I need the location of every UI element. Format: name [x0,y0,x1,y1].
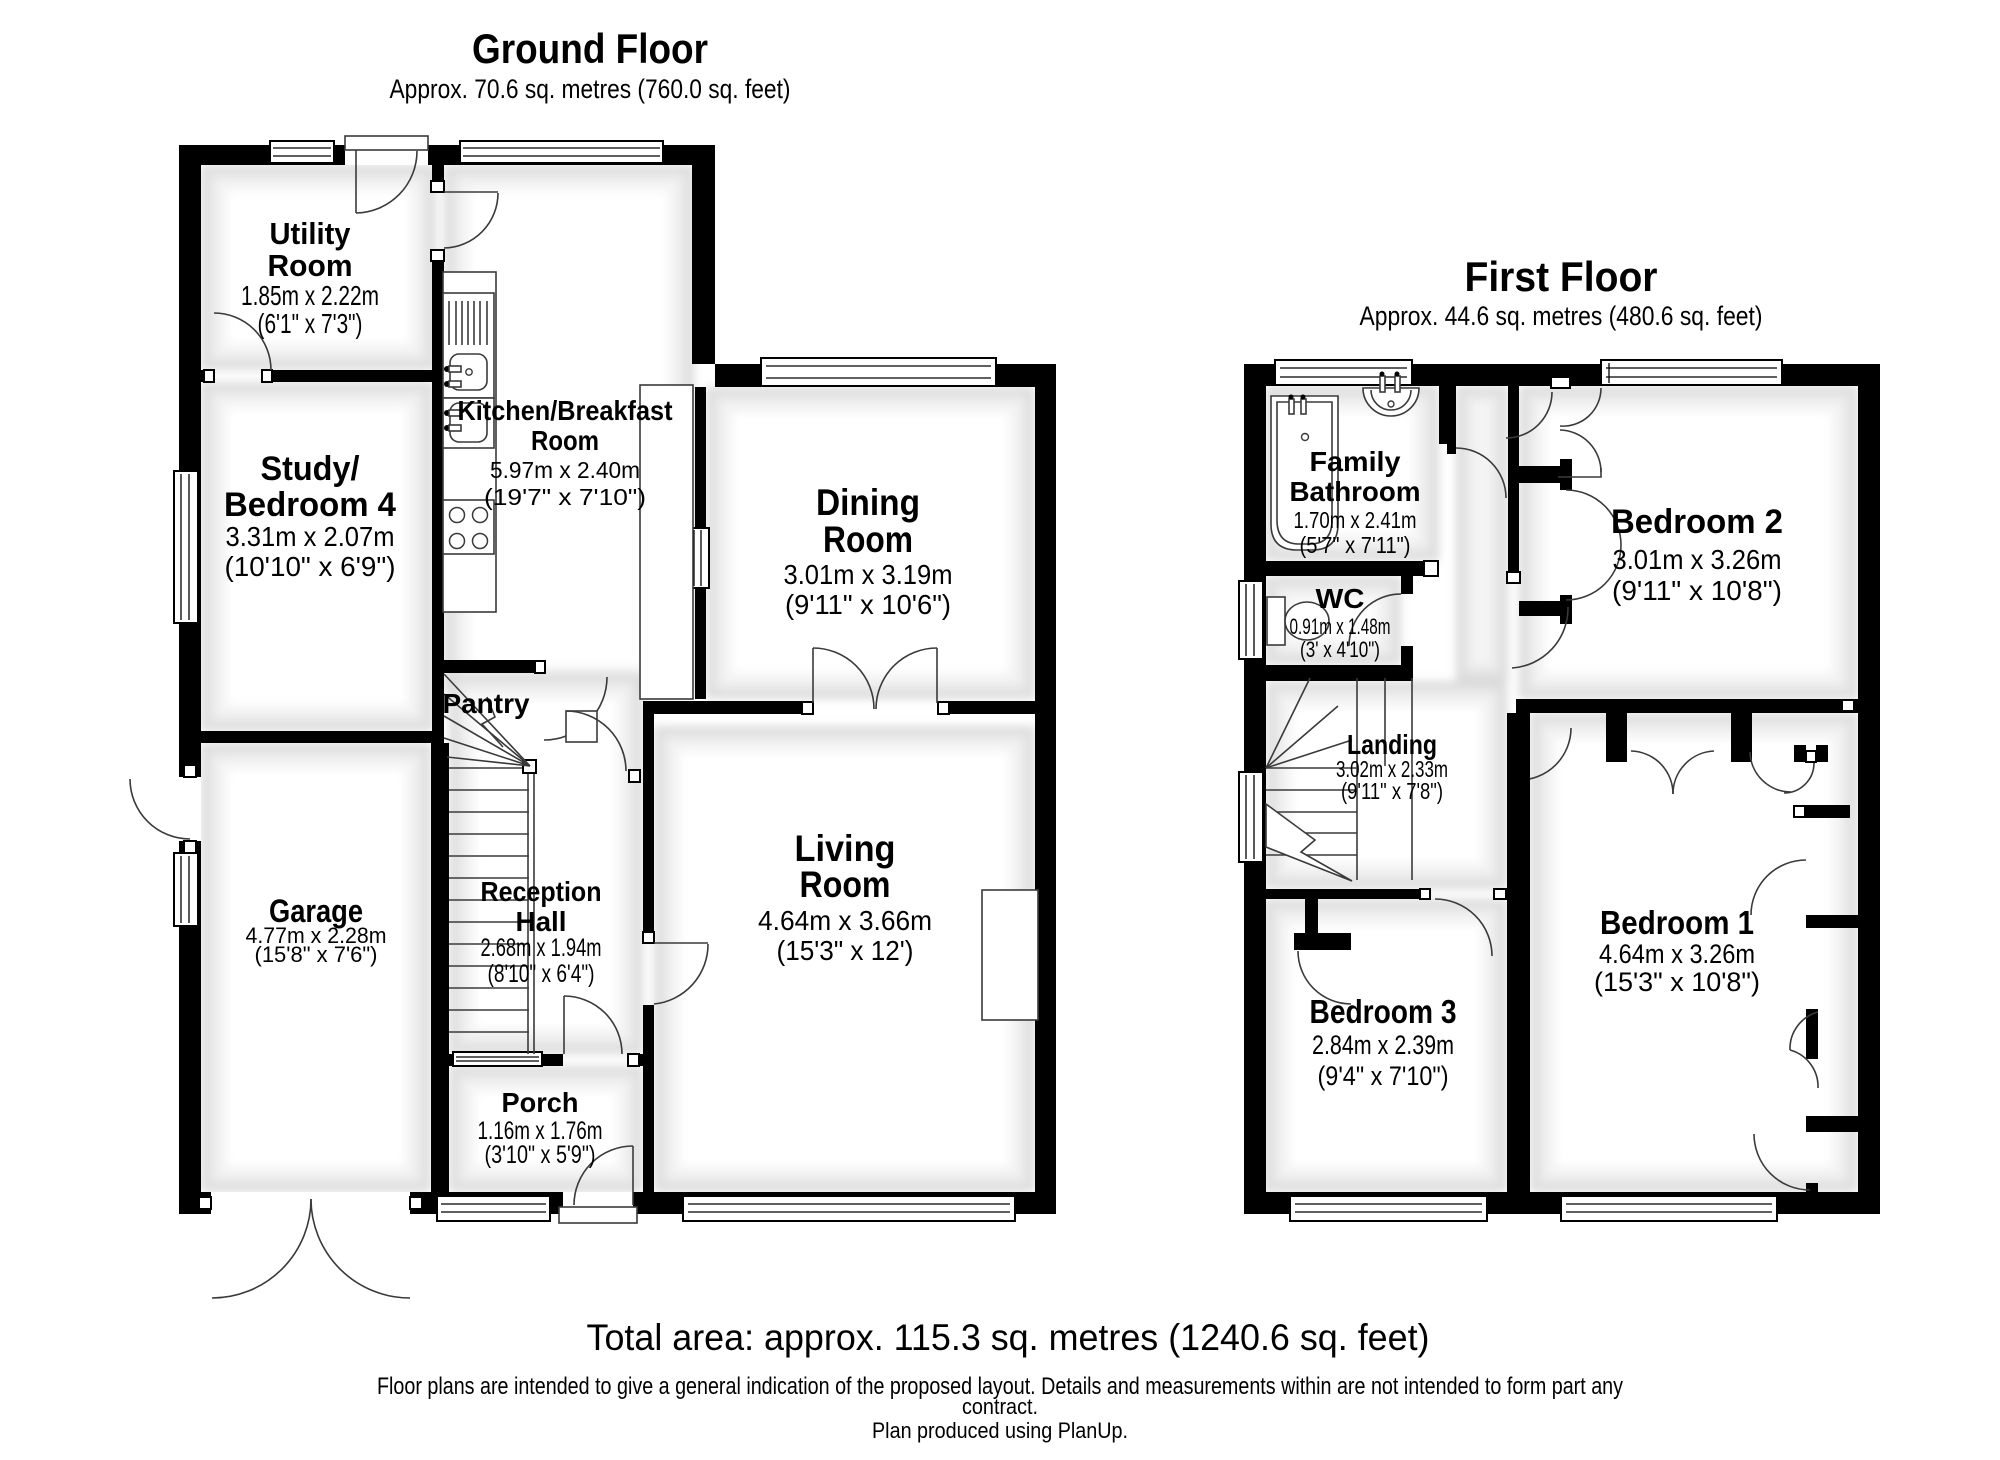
svg-text:1.85m x 2.22m: 1.85m x 2.22m [241,280,379,311]
svg-text:Approx. 44.6 sq. metres (480.6: Approx. 44.6 sq. metres (480.6 sq. feet) [1360,301,1763,331]
svg-text:Reception: Reception [481,876,602,907]
svg-text:4.64m x 3.26m: 4.64m x 3.26m [1599,939,1755,969]
svg-text:(9'11" x 10'8"): (9'11" x 10'8") [1612,575,1782,606]
svg-text:Bedroom 2: Bedroom 2 [1611,503,1783,541]
svg-text:(9'11" x 7'8"): (9'11" x 7'8") [1341,778,1443,804]
svg-text:Utility: Utility [270,216,352,251]
svg-text:WC: WC [1316,583,1365,614]
svg-text:(15'3" x 10'8"): (15'3" x 10'8") [1594,967,1760,997]
svg-text:Plan produced using PlanUp.: Plan produced using PlanUp. [872,1418,1128,1443]
svg-text:Bedroom 3: Bedroom 3 [1310,993,1457,1030]
svg-text:(10'10" x 6'9"): (10'10" x 6'9") [225,551,396,582]
svg-text:Bathroom: Bathroom [1290,476,1421,507]
svg-text:(15'8" x 7'6"): (15'8" x 7'6") [255,942,378,967]
svg-text:Pantry: Pantry [443,688,530,719]
svg-text:Hall: Hall [516,906,567,937]
svg-text:1.70m x 2.41m: 1.70m x 2.41m [1294,507,1417,533]
svg-text:Room: Room [268,248,353,283]
svg-text:5.97m x 2.40m: 5.97m x 2.40m [490,457,640,483]
svg-text:(3'10" x 5'9"): (3'10" x 5'9") [485,1141,596,1169]
svg-text:(3' x 4'10"): (3' x 4'10") [1300,637,1380,662]
svg-text:contract.: contract. [962,1394,1038,1419]
svg-text:(19'7" x 7'10"): (19'7" x 7'10") [484,484,646,510]
svg-text:(6'1" x 7'3"): (6'1" x 7'3") [258,308,363,339]
svg-text:Bedroom 4: Bedroom 4 [224,486,396,524]
svg-text:Approx. 70.6 sq. metres (760.0: Approx. 70.6 sq. metres (760.0 sq. feet) [390,74,791,104]
svg-text:(5'7" x 7'11"): (5'7" x 7'11") [1300,532,1411,558]
svg-text:3.01m x 3.26m: 3.01m x 3.26m [1613,544,1782,575]
svg-text:Porch: Porch [502,1087,579,1118]
svg-text:(9'4" x 7'10"): (9'4" x 7'10") [1318,1061,1449,1091]
svg-text:Room: Room [531,425,599,456]
svg-text:Room: Room [823,519,913,560]
svg-text:(15'3" x 12'): (15'3" x 12') [777,935,914,966]
svg-text:0.91m x 1.48m: 0.91m x 1.48m [1290,614,1391,639]
svg-text:Study/: Study/ [261,450,361,488]
svg-text:2.84m x 2.39m: 2.84m x 2.39m [1312,1030,1454,1060]
svg-text:Dining: Dining [816,482,920,523]
svg-text:Total area: approx. 115.3 sq.: Total area: approx. 115.3 sq. metres (12… [587,1316,1430,1358]
svg-text:Ground Floor: Ground Floor [472,25,708,72]
svg-text:4.64m x 3.66m: 4.64m x 3.66m [758,905,932,936]
svg-text:Family: Family [1310,446,1401,477]
svg-text:3.01m x 3.19m: 3.01m x 3.19m [784,559,953,590]
svg-text:(9'11" x 10'6"): (9'11" x 10'6") [785,589,951,620]
svg-text:First Floor: First Floor [1465,253,1658,300]
svg-text:(8'10" x 6'4"): (8'10" x 6'4") [488,960,595,988]
svg-text:3.31m x 2.07m: 3.31m x 2.07m [226,521,395,552]
svg-text:2.68m x 1.94m: 2.68m x 1.94m [481,934,602,962]
svg-text:Living: Living [795,828,896,869]
svg-text:Bedroom 1: Bedroom 1 [1600,904,1754,941]
svg-text:Room: Room [800,864,891,905]
svg-text:Kitchen/Breakfast: Kitchen/Breakfast [458,395,673,426]
